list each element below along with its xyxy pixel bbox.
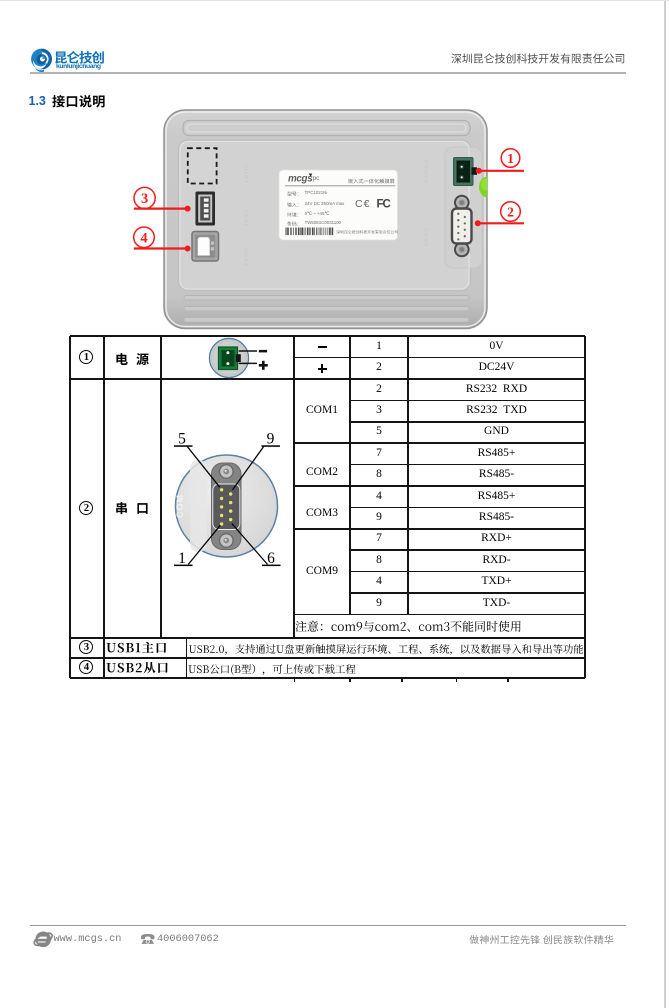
svg-text:9: 9 — [267, 431, 275, 448]
svg-text:UART: UART — [242, 166, 248, 184]
svg-text:COM9: COM9 — [422, 228, 428, 247]
svg-text:3: 3 — [141, 191, 148, 207]
svg-text:USB2: USB2 — [242, 249, 248, 266]
svg-text:2: 2 — [507, 204, 514, 219]
svg-text:1: 1 — [178, 550, 186, 567]
svg-text:COM: COM — [175, 494, 185, 518]
svg-text:FC: FC — [377, 199, 391, 211]
svg-text:pc: pc — [313, 175, 321, 182]
svg-text:5: 5 — [178, 431, 186, 448]
svg-text:1: 1 — [507, 151, 514, 166]
svg-text:mcgs: mcgs — [288, 174, 313, 185]
svg-text:POWER: POWER — [422, 160, 428, 184]
svg-text:USB1: USB1 — [242, 210, 248, 227]
svg-text:4: 4 — [140, 231, 147, 247]
svg-text:C€: C€ — [355, 198, 370, 210]
